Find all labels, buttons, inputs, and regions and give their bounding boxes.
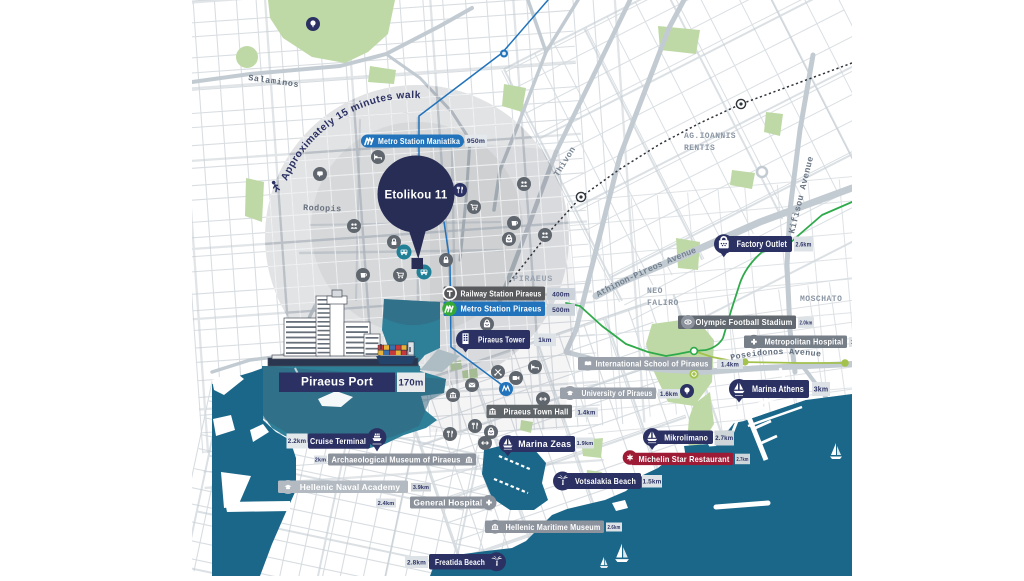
svg-text:Marina Zeas: Marina Zeas [518, 439, 571, 449]
svg-text:3km: 3km [814, 387, 829, 394]
svg-text:Factory Outlet: Factory Outlet [737, 239, 787, 249]
svg-text:Etolikou 11: Etolikou 11 [385, 190, 448, 202]
svg-text:2.6km: 2.6km [796, 241, 812, 248]
svg-text:1km: 1km [538, 337, 552, 344]
svg-text:950m: 950m [467, 138, 485, 145]
svg-text:2.4km: 2.4km [378, 501, 395, 507]
svg-text:170m: 170m [398, 378, 423, 389]
svg-text:1.4km: 1.4km [577, 410, 595, 416]
svg-text:AG.IOANNIS: AG.IOANNIS [684, 132, 736, 141]
svg-text:Hellenic Maritime Museum: Hellenic Maritime Museum [506, 522, 601, 532]
svg-text:1.4km: 1.4km [721, 362, 739, 368]
svg-text:2.7km: 2.7km [715, 436, 733, 442]
svg-text:RENTIS: RENTIS [684, 144, 715, 153]
svg-text:Marina Athens: Marina Athens [752, 384, 804, 394]
svg-text:Rodopis: Rodopis [303, 203, 342, 214]
svg-text:Olympic Football Stadium: Olympic Football Stadium [696, 318, 793, 327]
svg-text:NEO: NEO [647, 287, 663, 296]
svg-text:Railway Station Piraeus: Railway Station Piraeus [461, 289, 542, 298]
svg-text:1.9km: 1.9km [577, 441, 594, 447]
svg-text:FALIRO: FALIRO [647, 299, 679, 308]
svg-text:500m: 500m [552, 307, 570, 314]
svg-text:Mikrolimano: Mikrolimano [664, 432, 708, 442]
svg-text:2.6km: 2.6km [608, 525, 621, 531]
svg-text:Metro Station Piraeus: Metro Station Piraeus [461, 305, 542, 314]
svg-text:University of Piraeus: University of Piraeus [582, 389, 653, 398]
svg-text:Michelin Star Restaurant: Michelin Star Restaurant [639, 455, 730, 464]
svg-text:Freatida Beach: Freatida Beach [435, 557, 485, 567]
svg-text:Archaeological Museum of Pirae: Archaeological Museum of Piraeus [332, 455, 461, 465]
svg-text:2.8km: 2.8km [407, 559, 426, 566]
svg-text:PIRAEUS: PIRAEUS [513, 274, 553, 284]
svg-text:Piraeus Tower: Piraeus Tower [478, 335, 525, 344]
svg-text:2.7km: 2.7km [737, 457, 749, 463]
svg-text:International School of Piraeu: International School of Piraeus [596, 359, 709, 368]
svg-text:Votsalakia Beach: Votsalakia Beach [575, 476, 636, 486]
svg-text:MOSCHATO: MOSCHATO [800, 295, 842, 304]
svg-text:Metropolitan Hospital: Metropolitan Hospital [765, 338, 844, 347]
svg-text:2km: 2km [315, 458, 326, 464]
svg-text:2.0km: 2.0km [800, 320, 813, 326]
svg-text:Cruise Terminal: Cruise Terminal [310, 436, 366, 446]
svg-text:General Hospital: General Hospital [414, 498, 483, 508]
svg-text:Hellenic Naval Academy: Hellenic Naval Academy [300, 482, 401, 492]
svg-text:Metro Station Maniatika: Metro Station Maniatika [378, 137, 460, 146]
svg-text:Piraeus Port: Piraeus Port [301, 375, 373, 389]
svg-text:400m: 400m [552, 291, 570, 298]
svg-text:1.6km: 1.6km [660, 392, 678, 398]
svg-text:Piraeus Town Hall: Piraeus Town Hall [504, 406, 569, 416]
svg-text:3.9km: 3.9km [413, 485, 429, 491]
svg-text:2.2km: 2.2km [288, 438, 307, 445]
svg-text:1.5km: 1.5km [642, 479, 661, 486]
